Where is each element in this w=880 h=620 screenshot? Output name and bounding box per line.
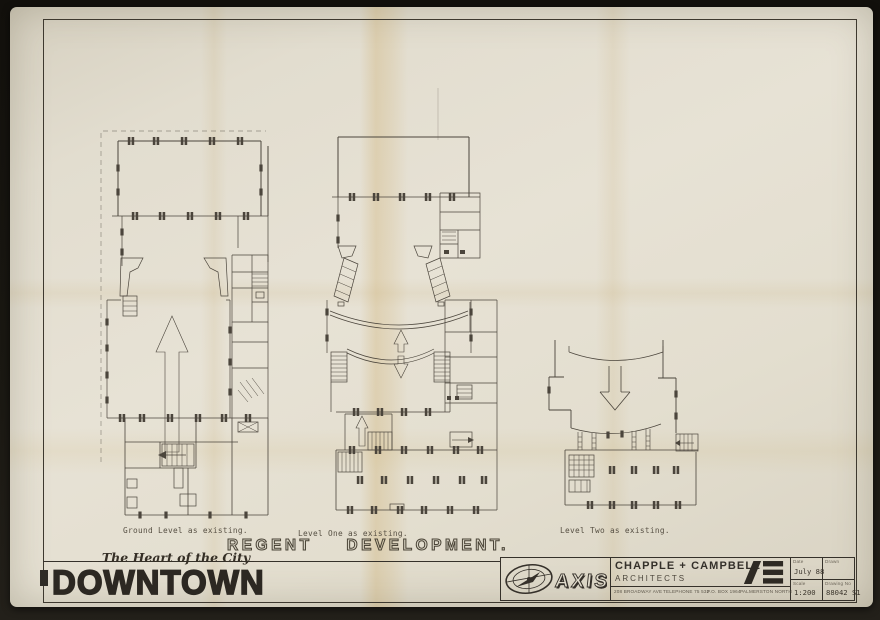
firm-role: ARCHITECTS [615,574,686,583]
firm-address: 208 BROADWAY AVE [614,589,662,594]
level-one-plan [325,88,497,514]
drawing-no-label: Drawing No [825,581,851,586]
firm-telephone: TELEPHONE 75 532 [663,589,709,594]
title-block-grid-horizontal [790,579,855,580]
date-label: Date [793,559,804,564]
ae-monogram-icon [741,560,785,585]
axis-logo-text: AXIS [554,571,607,592]
ground-level-caption: Ground Level as existing. [123,526,248,535]
drawn-label: Drawn [825,559,839,564]
firm-city: PALMERSTON NORTH [740,589,792,594]
level-two-caption: Level Two as existing. [560,526,670,535]
edge-mark [40,570,48,586]
drawing-no-value: 88042 S1 [826,588,861,597]
ground-level-plan [101,131,268,519]
firm-cell-divider [610,586,790,587]
downtown-wordmark: DOWNTOWN [52,563,265,603]
firm-name: CHAPPLE + CAMPBELL [615,560,761,572]
firm-po-box: P.O. BOX 1964 [707,589,741,594]
tagline-dash-right [254,561,260,562]
project-title: REGENT DEVELOPMENT. [227,537,509,555]
scale-label: Scale [793,581,806,586]
level-two-plan [547,340,698,509]
axis-globe-logo-icon: AXIS AXIS [503,559,607,599]
scale-value: 1:200 [794,588,816,597]
title-block-divider-1 [610,557,611,601]
date-value: July 88 [794,567,824,576]
tagline-dash-left [92,561,98,562]
